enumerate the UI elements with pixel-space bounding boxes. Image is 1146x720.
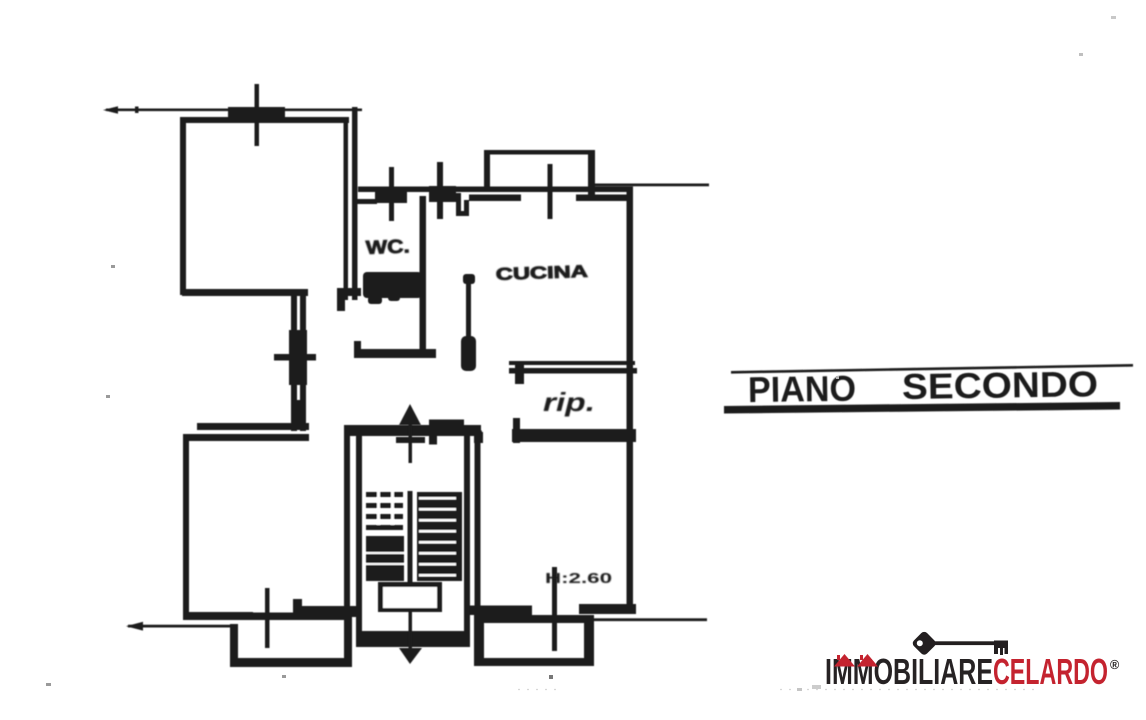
svg-text:CUCINA: CUCINA <box>495 262 588 284</box>
svg-text:CELARDO: CELARDO <box>993 651 1108 692</box>
svg-text:®: ® <box>1110 658 1120 672</box>
svg-text:rip.: rip. <box>543 387 595 417</box>
svg-text:WC.: WC. <box>365 236 410 259</box>
svg-text:IMMOBILIARE: IMMOBILIARE <box>825 651 993 692</box>
svg-text:H:2.60: H:2.60 <box>545 570 612 587</box>
svg-text:SECONDO: SECONDO <box>902 363 1099 407</box>
svg-text:PIANO: PIANO <box>748 368 857 411</box>
